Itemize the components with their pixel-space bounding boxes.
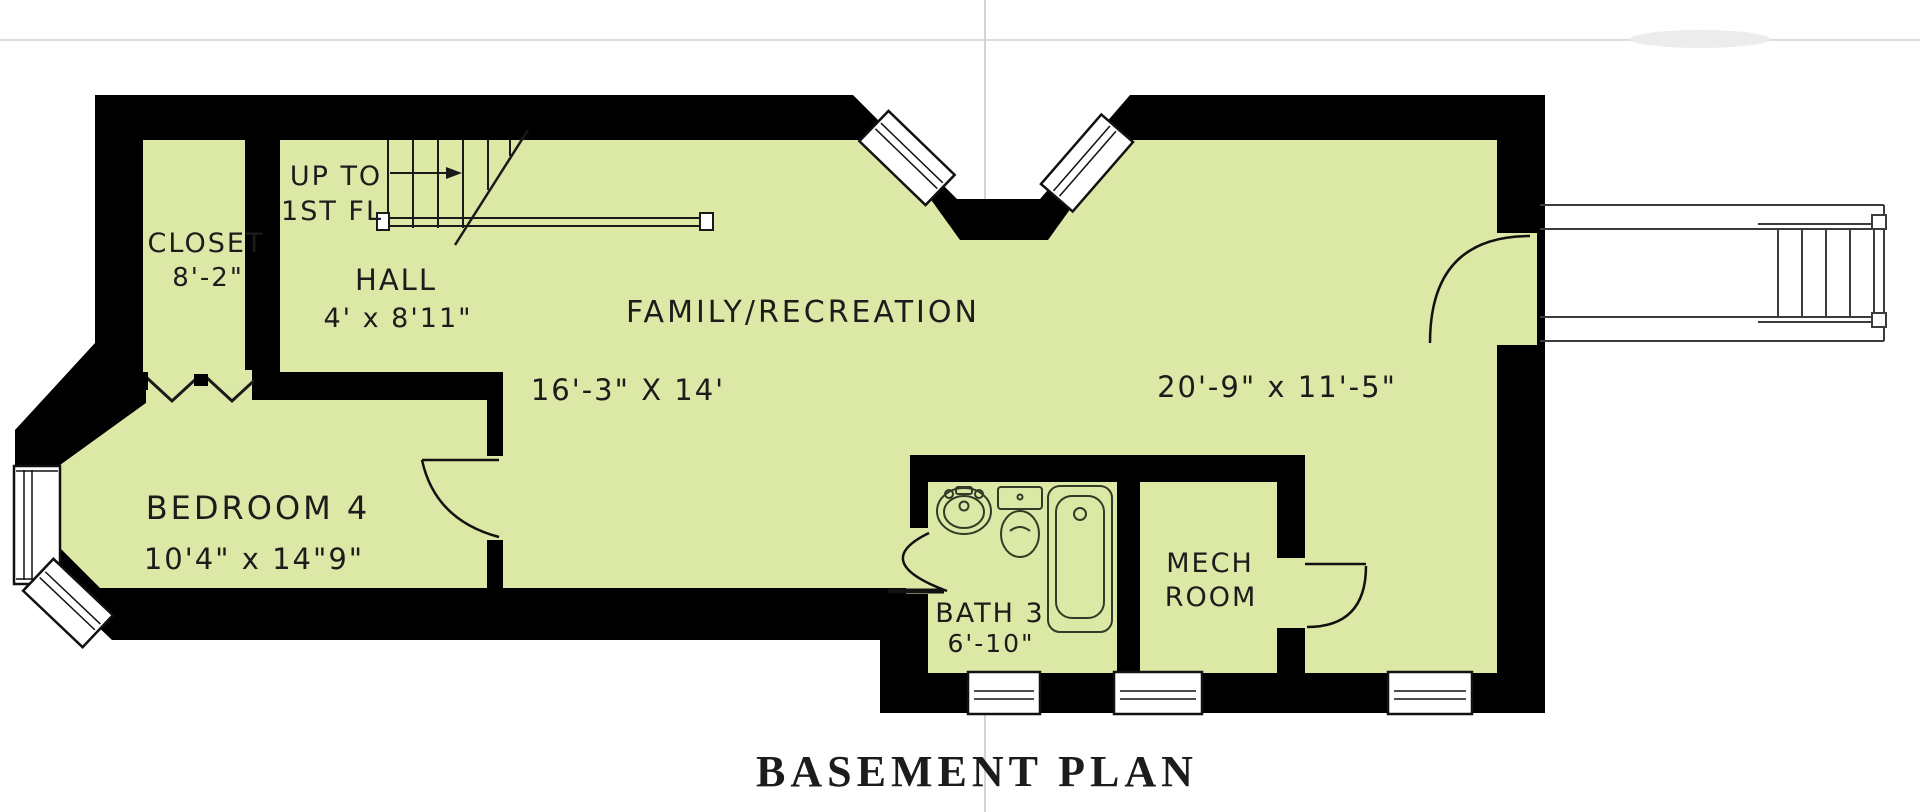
plan-title: BASEMENT PLAN — [756, 747, 1198, 796]
closet-label: CLOSET — [148, 228, 265, 259]
hall-dimension: 4' x 8'11" — [323, 303, 472, 334]
mech-room-label-line2: ROOM — [1165, 582, 1258, 613]
door-jamb — [254, 372, 264, 390]
floor-plan-page: CLOSET 8'-2" UP TO 1ST FL HALL 4' x 8'11… — [0, 0, 1920, 812]
scan-smudge — [1630, 30, 1770, 48]
bottom-window-3 — [1388, 672, 1472, 714]
bedroom-dimension: 10'4" x 14"9" — [144, 542, 364, 576]
bath-dimension: 6'-10" — [947, 629, 1034, 658]
family-room-label: FAMILY/RECREATION — [626, 295, 980, 330]
bedroom-door-opening — [483, 456, 507, 540]
bedroom-label: BEDROOM 4 — [146, 489, 371, 527]
bath-label: BATH 3 — [935, 598, 1044, 629]
closet-dimension: 8'-2" — [172, 263, 244, 293]
bottom-window-1 — [968, 672, 1040, 714]
bottom-window-2 — [1114, 672, 1202, 714]
family-room-dimension-left: 16'-3" X 14' — [531, 373, 725, 407]
stairs-note-line1: UP TO — [290, 161, 382, 192]
mech-door-opening — [1273, 558, 1309, 628]
ext-stair-bracket-bottom — [1872, 313, 1886, 327]
door-jamb — [194, 374, 208, 386]
stair-rail-post-right — [700, 213, 713, 230]
family-room-dimension-right: 20'-9" x 11'-5" — [1157, 370, 1397, 404]
ext-stair-bracket-top — [1872, 215, 1886, 229]
stairs-note-line2: 1ST FL — [281, 196, 383, 227]
mech-room-label-line1: MECH — [1166, 548, 1254, 579]
floor-plan-drawing: CLOSET 8'-2" UP TO 1ST FL HALL 4' x 8'11… — [0, 0, 1920, 812]
hall-label: HALL — [355, 263, 437, 297]
door-jamb — [138, 372, 148, 390]
